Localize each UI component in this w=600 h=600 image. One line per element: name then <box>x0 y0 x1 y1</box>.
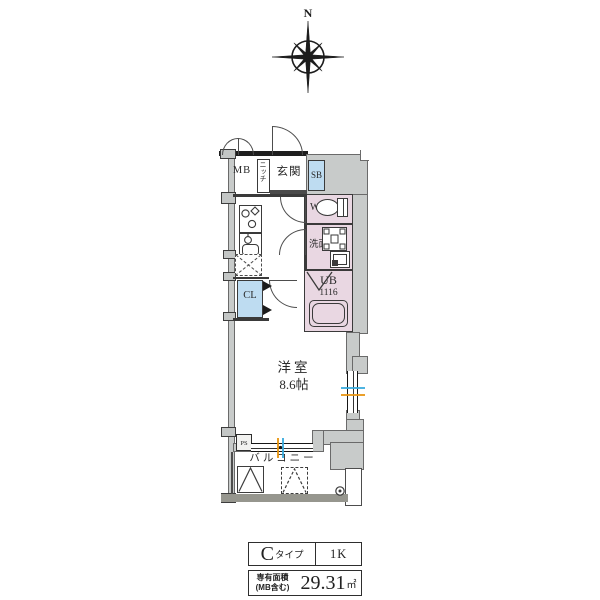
ac-unit-space-2 <box>281 467 308 494</box>
compass-point-nw <box>293 42 310 59</box>
compass-north-text: N <box>304 6 313 20</box>
entrance-label: 玄関 <box>271 166 307 179</box>
balcony-edge-bar <box>221 494 348 502</box>
area-label-cell: 専有面積 (MB含む) <box>249 571 296 595</box>
wall-closet-bottom <box>233 318 269 321</box>
compass-rose: N <box>272 6 344 93</box>
compass-point-e <box>308 55 344 60</box>
wall-top-right-notch <box>360 150 369 161</box>
area-unit: ㎡ <box>347 576 357 591</box>
ac-unit-space-1 <box>237 466 264 493</box>
type-cell: Cタイプ <box>249 543 316 565</box>
type-suffix: タイプ <box>275 547 304 561</box>
room-door-arc <box>269 280 297 308</box>
toilet-tank-line <box>343 199 344 216</box>
niche-label: ニッチ <box>259 161 266 182</box>
room-size-label: 8.6帖 <box>254 378 334 393</box>
entrance-door-arc <box>272 126 303 155</box>
area-value: 29.31 <box>301 572 346 595</box>
balcony-window-mid-rail <box>251 448 313 449</box>
unit-bath-size-label: 1116 <box>304 288 353 299</box>
compass-hub <box>306 55 311 60</box>
layout-cell: 1K <box>316 543 361 565</box>
compass-point-ne <box>307 42 324 59</box>
area-label-line1: 専有面積 <box>256 573 290 583</box>
vanity-icon <box>322 227 347 251</box>
toilet-bowl-icon <box>316 199 339 216</box>
wall-right-upper <box>352 194 368 334</box>
mb-door-leaf <box>238 138 239 155</box>
wall-closet-top <box>233 277 269 279</box>
wc-door-arc <box>280 197 306 223</box>
balcony-window <box>251 443 313 452</box>
wall-room-bottom-right <box>312 430 324 452</box>
room-label: 洋室 <box>254 360 334 376</box>
entrance-step-line <box>270 190 307 194</box>
stove-icon <box>239 205 262 233</box>
fridge-space <box>235 254 262 276</box>
pillar-6 <box>221 427 236 437</box>
type-letter: C <box>261 543 274 566</box>
info-table-bottom: 専有面積 (MB含む) 29.31㎡ <box>248 570 362 596</box>
washroom-door-arc <box>279 229 306 255</box>
layout-type: 1K <box>330 547 347 562</box>
compass-ring <box>292 41 324 73</box>
east-window-mid-rail <box>353 371 354 413</box>
compass-point-se <box>307 56 324 73</box>
info-table-top: Cタイプ 1K <box>248 542 362 566</box>
bathtub-icon-inner <box>312 303 345 324</box>
mb-door-arc-left <box>222 138 238 155</box>
shoe-box-label: SB <box>308 170 325 180</box>
east-window <box>347 371 358 413</box>
compass-point-s <box>305 57 310 93</box>
floorplan-page: MB ニッチ 玄関 SB WC 洗面 UB 1116 CL 洋室 8.6帖 PS… <box>0 0 600 600</box>
area-label-line2: (MB含む) <box>256 583 290 593</box>
unit-bath-label: UB <box>304 274 353 288</box>
mb-door-arc-right <box>238 138 254 155</box>
compass-point-sw <box>293 56 310 73</box>
balcony-left-line <box>231 452 233 494</box>
area-value-cell: 29.31㎡ <box>296 571 361 595</box>
neighbor-block-low <box>330 442 364 470</box>
compass-point-n <box>305 21 310 57</box>
compass-point-w <box>272 55 308 60</box>
pipe-space-label: PS <box>236 440 252 447</box>
closet-label: CL <box>237 290 263 302</box>
decor-overlay: N <box>0 0 600 600</box>
washer-icon-inner <box>333 254 347 265</box>
balcony-label: バルコニー <box>246 453 320 465</box>
mb-room-label: MB <box>229 165 255 177</box>
